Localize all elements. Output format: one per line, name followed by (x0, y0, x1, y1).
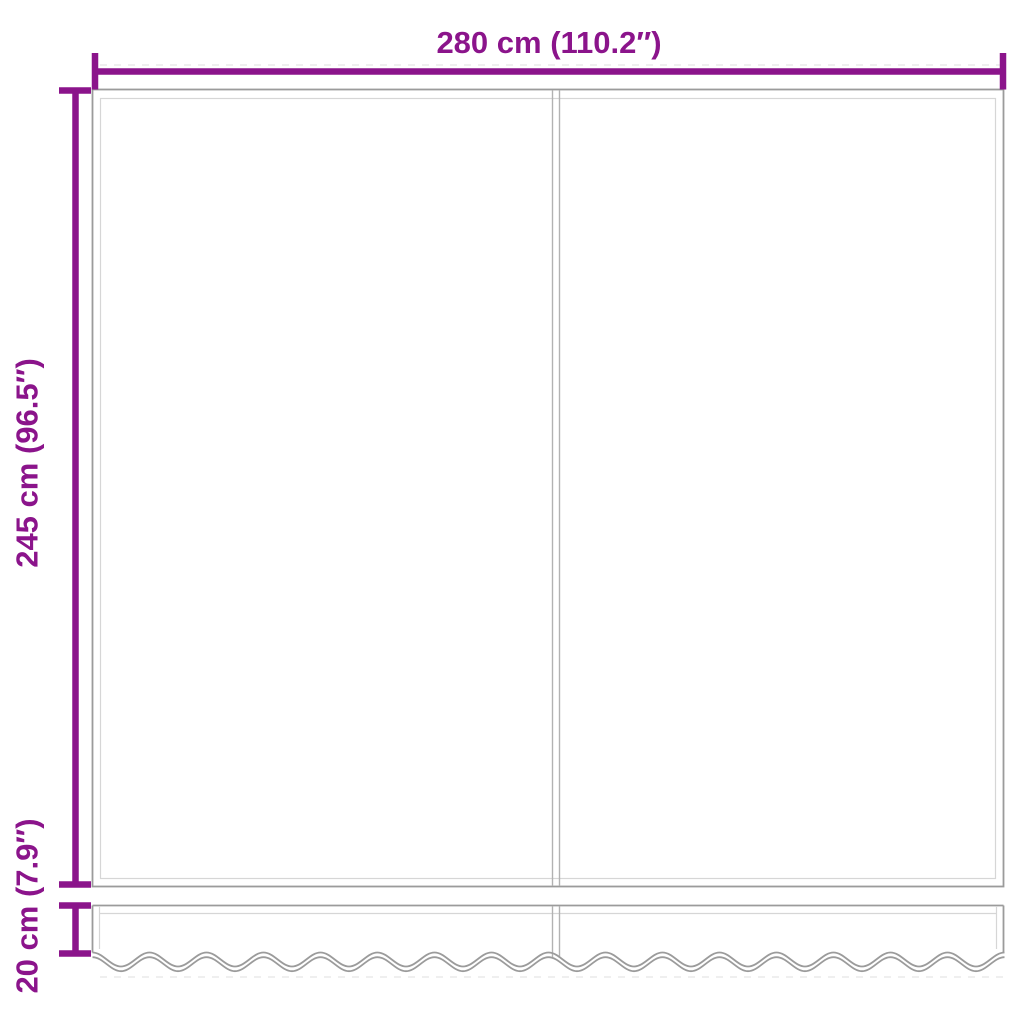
width-dimension-label: 280 cm (110.2″) (95, 27, 1003, 58)
valance-wave-upper (93, 953, 1005, 967)
valance (93, 906, 1005, 972)
fabric-panel (93, 90, 1004, 887)
valance-height-dimension-label: 20 cm (7.9″) (12, 818, 43, 993)
fabric-panel-outline (93, 90, 1004, 887)
height-dimension-label: 245 cm (96.5″) (12, 358, 43, 568)
awning-fabric-dimension-diagram: 280 cm (110.2″) 245 cm (96.5″) 20 cm (7.… (0, 0, 1024, 1024)
diagram-canvas (0, 0, 1024, 1024)
